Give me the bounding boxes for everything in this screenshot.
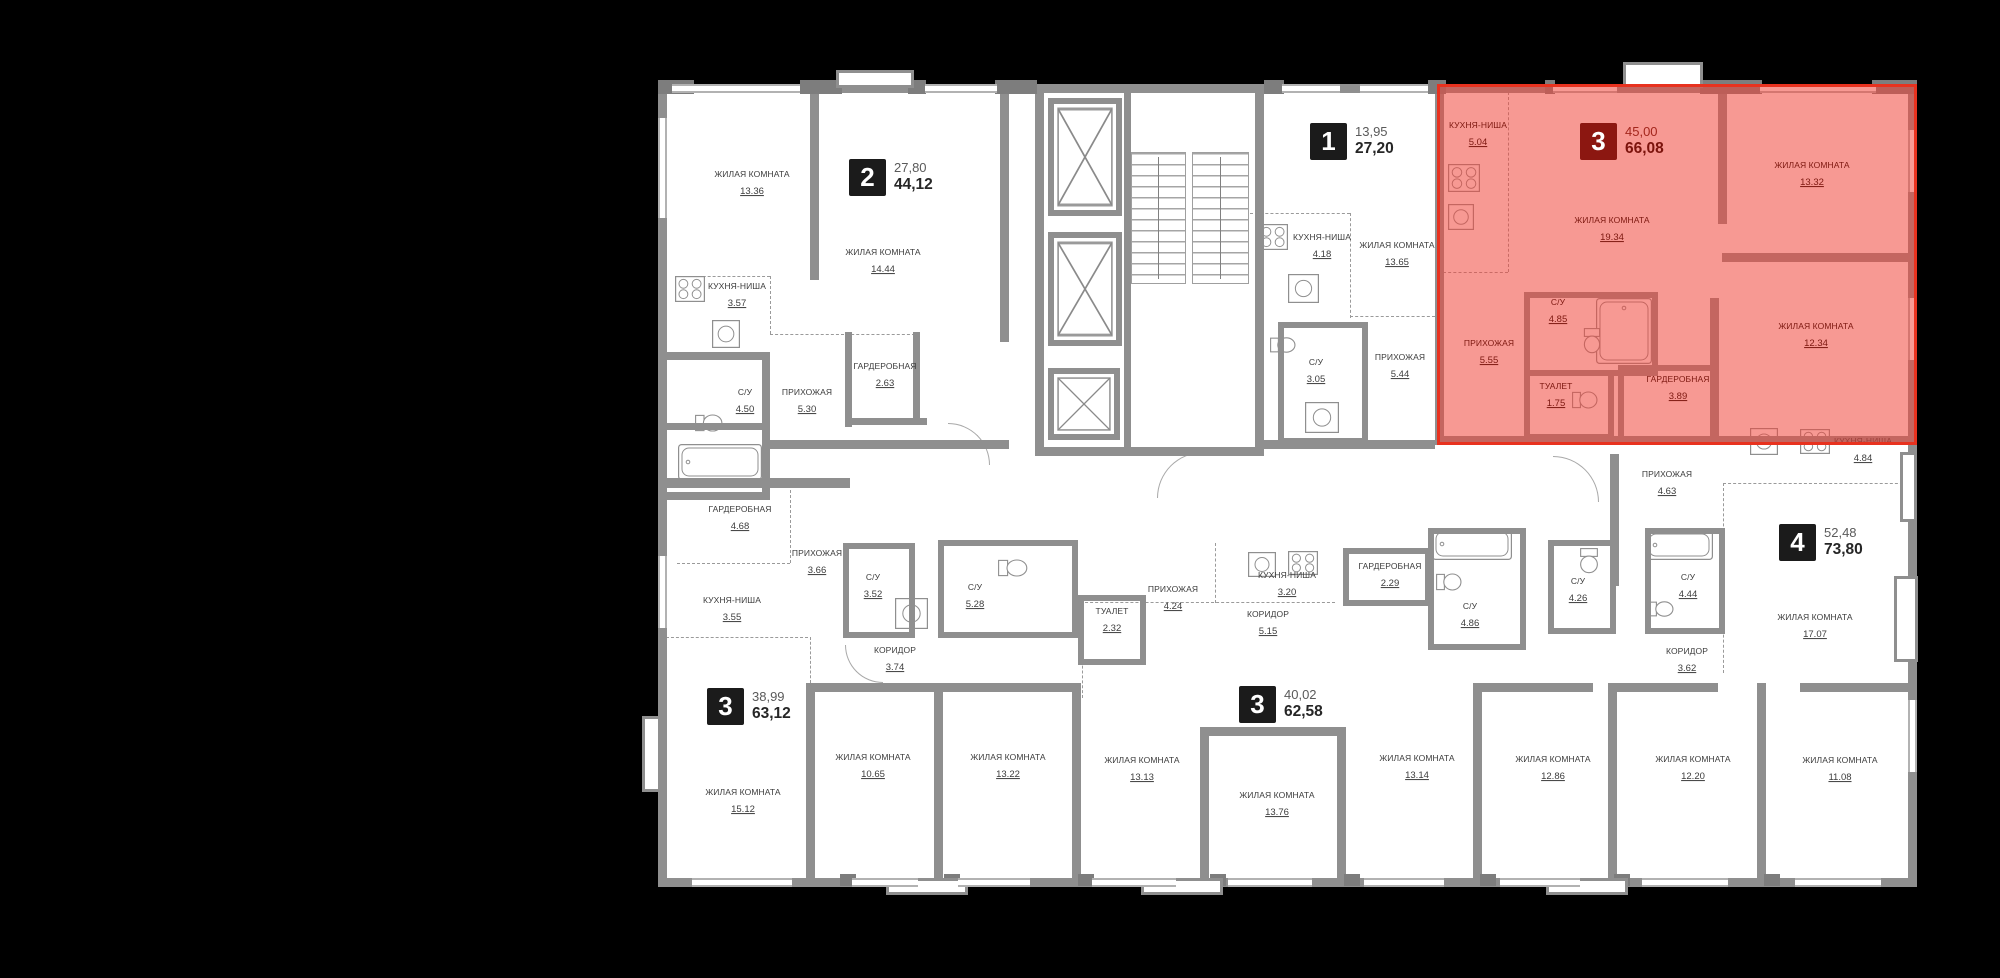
- room-name: ЖИЛАЯ КОМНАТА: [1774, 160, 1849, 171]
- room-name: ЖИЛАЯ КОМНАТА: [835, 752, 910, 763]
- room-name: С/У: [1307, 357, 1326, 368]
- room-area: 4.44: [1679, 589, 1698, 601]
- zone-boundary-dashed: [1215, 543, 1216, 603]
- room-area: 4.86: [1461, 618, 1480, 630]
- room-label: ГАРДЕРОБНАЯ 2.29: [1359, 561, 1422, 593]
- stove-fixture-icon: [675, 276, 705, 302]
- room-label: ЖИЛАЯ КОМНАТА 19.34: [1574, 215, 1649, 247]
- room-label: ЖИЛАЯ КОМНАТА 13.22: [970, 752, 1045, 784]
- room-label: ЖИЛАЯ КОМНАТА 12.20: [1655, 754, 1730, 786]
- room-label: ГАРДЕРОБНАЯ 4.68: [709, 504, 772, 536]
- apartment-living-area: 27,80: [894, 161, 933, 176]
- wall: [1608, 683, 1617, 878]
- room-name: ПРИХОЖАЯ: [1464, 338, 1514, 349]
- wall: [1124, 84, 1131, 456]
- apartment-areas: 13,95 27,20: [1355, 125, 1394, 158]
- wall: [658, 478, 850, 488]
- wall: [806, 683, 1081, 692]
- room-name: ГАРДЕРОБНАЯ: [709, 504, 772, 515]
- room-name: ЖИЛАЯ КОМНАТА: [1655, 754, 1730, 765]
- room-name: С/У: [1461, 601, 1480, 612]
- apartment-living-area: 52,48: [1824, 526, 1863, 541]
- wall: [1800, 683, 1908, 692]
- room-label: С/У 4.86: [1461, 601, 1480, 633]
- room-label: С/У 4.26: [1569, 576, 1588, 608]
- apartment-badge[interactable]: 1: [1310, 123, 1347, 160]
- room-name: ЖИЛАЯ КОМНАТА: [1239, 790, 1314, 801]
- wall: [1000, 84, 1009, 342]
- room-label: КУХНЯ-НИША 4.18: [1293, 232, 1351, 264]
- room-name: ЖИЛАЯ КОМНАТА: [1104, 755, 1179, 766]
- wall: [1608, 683, 1718, 692]
- apartment-areas: 52,48 73,80: [1824, 526, 1863, 559]
- room-label: ЖИЛАЯ КОМНАТА 11.08: [1802, 755, 1877, 787]
- apartment-badge[interactable]: 2: [849, 159, 886, 196]
- room-area: 3.55: [723, 612, 742, 624]
- room-label: ГАРДЕРОБНАЯ 2.63: [854, 361, 917, 393]
- apartment-living-area: 40,02: [1284, 688, 1323, 703]
- room-label: ТУАЛЕТ 1.75: [1540, 381, 1573, 413]
- zone-boundary-dashed: [1723, 483, 1908, 484]
- wall-pier: [1344, 874, 1360, 886]
- window: [1795, 878, 1881, 887]
- room-label: ЖИЛАЯ КОМНАТА 13.76: [1239, 790, 1314, 822]
- room-label: ЖИЛАЯ КОМНАТА 10.65: [835, 752, 910, 784]
- room-label: С/У 4.50: [736, 387, 755, 419]
- room-area: 2.29: [1381, 578, 1400, 590]
- window: [1092, 878, 1176, 887]
- window-bay: [1894, 576, 1918, 662]
- room-name: ЖИЛАЯ КОМНАТА: [1359, 240, 1434, 251]
- room-name: КУХНЯ-НИША: [1293, 232, 1351, 243]
- room-label: ПРИХОЖАЯ 5.44: [1375, 352, 1425, 384]
- zone-boundary-dashed: [770, 334, 915, 335]
- room-name: КОРИДОР: [1247, 609, 1289, 620]
- room-name: ЖИЛАЯ КОМНАТА: [845, 247, 920, 258]
- window: [1364, 878, 1444, 887]
- room-name: С/У: [966, 582, 985, 593]
- room-label: ЖИЛАЯ КОМНАТА 12.34: [1778, 321, 1853, 353]
- room-name: ПРИХОЖАЯ: [782, 387, 832, 398]
- window: [658, 556, 667, 628]
- wall: [1757, 683, 1766, 878]
- room-area: 13.14: [1405, 770, 1429, 782]
- room-name: С/У: [736, 387, 755, 398]
- wall: [1473, 683, 1593, 692]
- room-label: ЖИЛАЯ КОМНАТА 13.13: [1104, 755, 1179, 787]
- window: [658, 118, 667, 218]
- room-area: 4.50: [736, 404, 755, 416]
- elevator-shaft: [1048, 368, 1120, 440]
- wall: [845, 332, 852, 427]
- room-label: ТУАЛЕТ 2.32: [1096, 606, 1129, 638]
- room-area: 3.05: [1307, 374, 1326, 386]
- zone-boundary-dashed: [666, 637, 808, 638]
- room-area: 13.36: [740, 186, 764, 198]
- wall: [770, 440, 1009, 449]
- zone-boundary-dashed: [1350, 213, 1351, 318]
- wall-pier: [1264, 80, 1284, 94]
- room-label: КУХНЯ-НИША 3.55: [703, 595, 761, 627]
- room-area: 13.76: [1265, 807, 1289, 819]
- room-label: ПРИХОЖАЯ 3.66: [792, 548, 842, 580]
- room-area: 4.24: [1164, 601, 1183, 613]
- room-label: ЖИЛАЯ КОМНАТА 13.32: [1774, 160, 1849, 192]
- window: [1500, 878, 1580, 887]
- window-bay: [836, 70, 914, 88]
- room-name: ПРИХОЖАЯ: [792, 548, 842, 559]
- room-name: ГАРДЕРОБНАЯ: [854, 361, 917, 372]
- room-area: 10.65: [861, 769, 885, 781]
- room-name: ГАРДЕРОБНАЯ: [1359, 561, 1422, 572]
- apartment-areas: 38,99 63,12: [752, 690, 791, 723]
- zone-boundary-dashed: [677, 563, 790, 564]
- sink-fixture-icon: [712, 320, 740, 348]
- wall: [1264, 440, 1435, 449]
- wall: [1337, 727, 1346, 878]
- room-name: ЖИЛАЯ КОМНАТА: [970, 752, 1045, 763]
- room-area: 3.20: [1278, 587, 1297, 599]
- room-name: ПРИХОЖАЯ: [1375, 352, 1425, 363]
- window: [1360, 84, 1428, 93]
- room-area: 12.86: [1541, 771, 1565, 783]
- window: [692, 878, 792, 887]
- room-name: ЖИЛАЯ КОМНАТА: [1777, 612, 1852, 623]
- apartment-living-area: 13,95: [1355, 125, 1394, 140]
- apartment-badge[interactable]: 4: [1779, 524, 1816, 561]
- window-bay: [1900, 452, 1917, 522]
- room-walls: [938, 540, 1078, 638]
- zone-boundary-dashed: [1350, 316, 1435, 317]
- apartment-areas: 45,00 66,08: [1625, 125, 1664, 158]
- wall-pier: [995, 80, 1037, 94]
- room-name: ЖИЛАЯ КОМНАТА: [705, 787, 780, 798]
- room-area: 1.75: [1547, 398, 1566, 410]
- window-bay: [642, 716, 661, 792]
- wall: [1072, 688, 1081, 878]
- wall: [1035, 84, 1044, 456]
- room-name: ЖИЛАЯ КОМНАТА: [1778, 321, 1853, 332]
- apartment-total-area: 27,20: [1355, 140, 1394, 158]
- elevator-shaft: [1048, 98, 1122, 216]
- window: [1642, 878, 1728, 887]
- room-label: ПРИХОЖАЯ 4.24: [1148, 584, 1198, 616]
- elevator-shaft: [1048, 232, 1122, 346]
- room-area: 3.62: [1678, 663, 1697, 675]
- room-area: 15.12: [731, 804, 755, 816]
- room-name: КУХНЯ-НИША: [1258, 570, 1316, 581]
- wall: [1610, 454, 1619, 586]
- wall: [658, 352, 768, 360]
- room-area: 3.57: [728, 298, 747, 310]
- room-name: ПРИХОЖАЯ: [1148, 584, 1198, 595]
- apartment-badge[interactable]: 3: [1580, 123, 1617, 160]
- room-area: 13.22: [996, 769, 1020, 781]
- room-area: 12.34: [1804, 338, 1828, 350]
- zone-boundary-dashed: [810, 637, 811, 683]
- apartment-total-area: 44,12: [894, 176, 933, 194]
- room-area: 4.68: [731, 521, 750, 533]
- wall: [1255, 84, 1264, 456]
- room-area: 4.63: [1658, 486, 1677, 498]
- apartment-living-area: 38,99: [752, 690, 791, 705]
- room-area: 5.28: [966, 599, 985, 611]
- apartment-living-area: 45,00: [1625, 125, 1664, 140]
- room-area: 19.34: [1600, 232, 1624, 244]
- wall: [1200, 727, 1209, 878]
- room-name: ТУАЛЕТ: [1096, 606, 1129, 617]
- room-name: КУХНЯ-НИША: [708, 281, 766, 292]
- room-label: ЖИЛАЯ КОМНАТА 15.12: [705, 787, 780, 819]
- room-area: 4.18: [1313, 249, 1332, 261]
- room-area: 13.65: [1385, 257, 1409, 269]
- room-label: С/У 5.28: [966, 582, 985, 614]
- room-name: ЖИЛАЯ КОМНАТА: [1515, 754, 1590, 765]
- stair-guide-line: [1220, 157, 1221, 279]
- room-label: С/У 4.44: [1679, 572, 1698, 604]
- zone-boundary-dashed: [790, 490, 791, 563]
- room-area: 14.44: [871, 264, 895, 276]
- room-area: 4.26: [1569, 593, 1588, 605]
- room-label: ЖИЛАЯ КОМНАТА 13.36: [714, 169, 789, 201]
- room-area: 5.04: [1469, 137, 1488, 149]
- staircase: [1131, 152, 1249, 284]
- room-name: КОРИДОР: [874, 645, 916, 656]
- room-label: КУХНЯ-НИША 3.20: [1258, 570, 1316, 602]
- room-name: КУХНЯ-НИША: [703, 595, 761, 606]
- room-label: КУХНЯ-НИША 3.57: [708, 281, 766, 313]
- wall-pier: [1764, 874, 1780, 886]
- room-label: ЖИЛАЯ КОМНАТА 14.44: [845, 247, 920, 279]
- room-name: ЖИЛАЯ КОМНАТА: [1379, 753, 1454, 764]
- room-name: С/У: [1549, 297, 1568, 308]
- room-area: 3.52: [864, 589, 883, 601]
- room-area: 2.63: [876, 378, 895, 390]
- room-name: ПРИХОЖАЯ: [1642, 469, 1692, 480]
- apartment-total-area: 73,80: [1824, 541, 1863, 559]
- room-area: 5.55: [1480, 355, 1499, 367]
- apartment-total-area: 66,08: [1625, 140, 1664, 158]
- window: [1282, 84, 1340, 93]
- room-label: ПРИХОЖАЯ 4.63: [1642, 469, 1692, 501]
- wall: [934, 683, 943, 878]
- room-name: ЖИЛАЯ КОМНАТА: [1802, 755, 1877, 766]
- room-area: 13.13: [1130, 772, 1154, 784]
- room-label: С/У 4.85: [1549, 297, 1568, 329]
- room-area: 2.32: [1103, 623, 1122, 635]
- room-area: 5.44: [1391, 369, 1410, 381]
- room-name: ЖИЛАЯ КОМНАТА: [1574, 215, 1649, 226]
- zone-boundary-dashed: [1250, 213, 1350, 214]
- window: [852, 878, 918, 887]
- room-label: С/У 3.52: [864, 572, 883, 604]
- room-area: 5.15: [1259, 626, 1278, 638]
- room-name: КУХНЯ-НИША: [1449, 120, 1507, 131]
- apartment-total-area: 62,58: [1284, 703, 1323, 721]
- room-label: КОРИДОР 3.74: [874, 645, 916, 677]
- zone-boundary-dashed: [770, 276, 771, 334]
- room-label: ГАРДЕРОБНАЯ 3.89: [1647, 374, 1710, 406]
- window: [672, 84, 800, 93]
- room-area: 3.66: [808, 565, 827, 577]
- room-area: 5.30: [798, 404, 817, 416]
- wall: [806, 683, 815, 878]
- apartment-areas: 40,02 62,58: [1284, 688, 1323, 721]
- room-name: С/У: [1569, 576, 1588, 587]
- apartment-badge[interactable]: 3: [707, 688, 744, 725]
- wall: [658, 423, 768, 430]
- room-area: 17.07: [1803, 629, 1827, 641]
- room-name: ГАРДЕРОБНАЯ: [1647, 374, 1710, 385]
- window: [958, 878, 1030, 887]
- room-area: 4.84: [1854, 453, 1873, 465]
- tubh-fixture-icon: [678, 444, 762, 480]
- wall: [658, 492, 770, 500]
- room-label: КОРИДОР 3.62: [1666, 646, 1708, 678]
- room-label: КУХНЯ-НИША 5.04: [1449, 120, 1507, 152]
- room-area: 12.20: [1681, 771, 1705, 783]
- room-area: 3.74: [886, 662, 905, 674]
- room-area: 13.32: [1800, 177, 1824, 189]
- apartment-total-area: 63,12: [752, 705, 791, 723]
- wall: [1035, 447, 1264, 456]
- window: [1228, 878, 1312, 887]
- room-label: КОРИДОР 5.15: [1247, 609, 1289, 641]
- room-label: ПРИХОЖАЯ 5.30: [782, 387, 832, 419]
- apartment-badge[interactable]: 3: [1239, 686, 1276, 723]
- apartment-areas: 27,80 44,12: [894, 161, 933, 194]
- stair-guide-line: [1158, 157, 1159, 279]
- room-label: ЖИЛАЯ КОМНАТА 13.14: [1379, 753, 1454, 785]
- room-label: ЖИЛАЯ КОМНАТА 13.65: [1359, 240, 1434, 272]
- room-name: С/У: [1679, 572, 1698, 583]
- window: [925, 84, 997, 93]
- wall: [1473, 683, 1482, 878]
- wall: [1205, 727, 1346, 736]
- room-area: 11.08: [1828, 772, 1851, 784]
- room-name: ТУАЛЕТ: [1540, 381, 1573, 392]
- wall-pier: [1480, 874, 1496, 886]
- room-label: ЖИЛАЯ КОМНАТА 17.07: [1777, 612, 1852, 644]
- room-label: ЖИЛАЯ КОМНАТА 12.86: [1515, 754, 1590, 786]
- floorplan-canvas: ЖИЛАЯ КОМНАТА 13.36 ЖИЛАЯ КОМНАТА 14.44 …: [0, 0, 2000, 978]
- window: [1908, 700, 1917, 772]
- room-area: 3.89: [1669, 391, 1688, 403]
- sink-fixture-icon: [1288, 274, 1319, 303]
- room-name: С/У: [864, 572, 883, 583]
- wall: [810, 84, 819, 280]
- room-label: С/У 3.05: [1307, 357, 1326, 389]
- room-name: ЖИЛАЯ КОМНАТА: [714, 169, 789, 180]
- room-area: 4.85: [1549, 314, 1568, 326]
- room-name: КОРИДОР: [1666, 646, 1708, 657]
- room-label: ПРИХОЖАЯ 5.55: [1464, 338, 1514, 370]
